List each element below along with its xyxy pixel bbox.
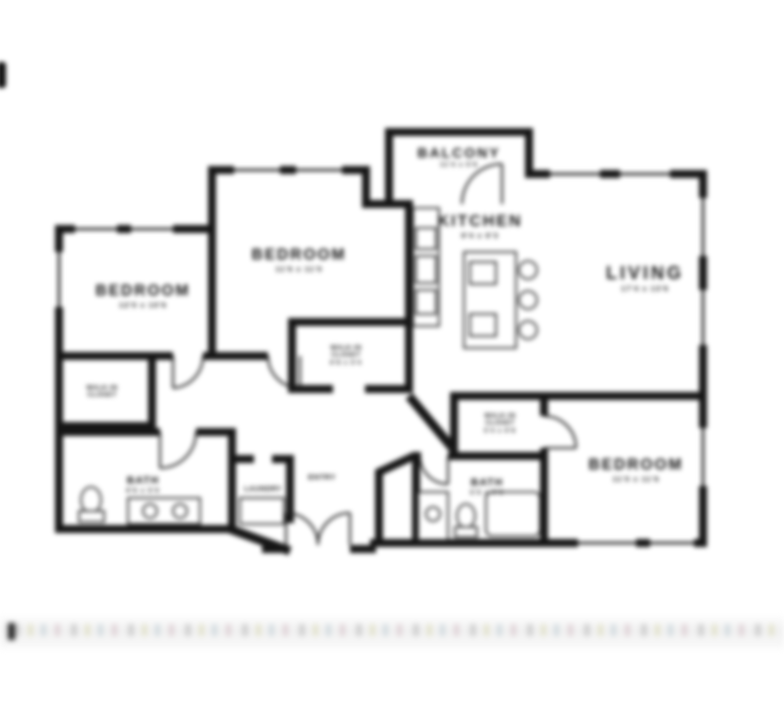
bar-stool-icon [519, 321, 537, 339]
door-arc-balcony [462, 164, 502, 204]
room-label-bedroom-top-middle: BEDROOM 11'6 x 11'0 [252, 246, 347, 273]
kitchen-appliance [416, 290, 436, 314]
wall [448, 452, 548, 460]
room-name: BATH [470, 477, 504, 489]
floor-plan-page: BALCONY 11'4 x 5'6 KITCHEN 9'4 x 9'3 LIV… [0, 0, 784, 709]
window [296, 169, 342, 172]
wall [208, 225, 216, 360]
wall [540, 392, 707, 400]
wall [375, 470, 383, 547]
wall [236, 455, 254, 463]
toilet-tank [79, 511, 104, 522]
room-name: KITCHEN [437, 213, 522, 231]
toilet-tank [455, 527, 477, 537]
wall-diagonal [230, 529, 290, 551]
window [702, 290, 705, 345]
wall [350, 545, 376, 553]
kitchen-appliance [416, 228, 436, 249]
room-label-entry: ENTRY [308, 474, 336, 483]
wall [288, 318, 296, 393]
window [75, 228, 117, 231]
room-name: BEDROOM [589, 456, 684, 474]
room-name: CLOSET [86, 392, 117, 399]
room-label-living: LIVING 17'4 x 13'6 [606, 263, 684, 293]
room-label-kitchen: KITCHEN 9'4 x 9'3 [437, 213, 522, 241]
room-dims: 9'4 x 9'3 [437, 232, 522, 241]
room-name: BALCONY [417, 145, 500, 161]
room-dims: 9'6 x 5'0 [126, 488, 160, 495]
sink-icon [173, 504, 187, 518]
kitchen-appliance [416, 256, 436, 283]
room-name: CLOSET [330, 352, 362, 359]
wall [540, 448, 548, 547]
room-label-balcony: BALCONY 11'4 x 5'6 [417, 145, 500, 170]
room-label-wic-right: WALK-IN CLOSET 5'4 x 6'8 [484, 413, 516, 436]
wall [208, 166, 216, 233]
bar-stool-icon [519, 261, 537, 279]
room-dims: 5'4 x 6'8 [484, 429, 516, 436]
wall [288, 318, 410, 326]
room-name: WALK-IN [484, 413, 516, 420]
window [234, 169, 280, 172]
floor-plan-drawing [0, 0, 784, 709]
footer-blurred-text [14, 624, 774, 636]
bathtub [486, 492, 540, 536]
footer-caption-strip [0, 615, 784, 649]
kitchen-cooktop [470, 314, 496, 336]
window [578, 542, 636, 545]
room-name: BEDROOM [96, 282, 191, 300]
door-arc-bedroom-right [544, 416, 576, 448]
toilet-icon [457, 504, 475, 528]
wall [405, 200, 413, 393]
window [702, 428, 705, 486]
wall [216, 352, 268, 360]
washer-dryer [240, 498, 284, 524]
room-dims: 5'0 x 9'6 [470, 490, 504, 497]
room-dims: 11'4 x 5'6 [417, 162, 500, 169]
door-arc-bedroom-left [173, 356, 203, 388]
room-label-bath-left: BATH 9'6 x 5'0 [126, 475, 160, 496]
toilet-icon [81, 487, 101, 513]
room-name: WALK-IN [330, 345, 362, 352]
wall [208, 166, 370, 174]
room-name: LIVING [606, 263, 684, 284]
room-name: BEDROOM [252, 246, 347, 264]
window [620, 173, 670, 176]
room-label-wic-middle: WALK-IN CLOSET 6'8 x 5'4 [330, 345, 362, 368]
wall [55, 428, 160, 436]
door-arc-bath-left [160, 432, 196, 468]
window [550, 173, 600, 176]
wall [196, 428, 236, 436]
wall-diagonal [377, 456, 414, 473]
bar-stool-icon [519, 291, 537, 309]
window [58, 252, 61, 307]
room-dims: 6'8 x 5'4 [330, 361, 362, 368]
wall [148, 352, 156, 430]
room-dims: 11'6 x 11'0 [252, 265, 347, 274]
room-label-laundry: LAUNDRY [244, 486, 281, 494]
floor-plan: BALCONY 11'4 x 5'6 KITCHEN 9'4 x 9'3 LIV… [0, 0, 784, 709]
room-label-wic-left: WALK-IN CLOSET [86, 385, 117, 400]
door-arc-bath-right [420, 456, 448, 484]
window [131, 228, 173, 231]
room-name: LAUNDRY [244, 486, 281, 494]
window [702, 198, 705, 256]
room-label-bedroom-bottom-right: BEDROOM 11'0 x 11'6 [589, 456, 684, 483]
wall [385, 128, 393, 206]
wall-diagonal [409, 396, 454, 450]
bath-vanity [128, 498, 200, 524]
room-name: WALK-IN [86, 385, 117, 392]
room-name: ENTRY [308, 474, 336, 483]
wall [228, 430, 236, 533]
sink-icon [426, 507, 440, 521]
room-name: BATH [126, 475, 160, 487]
room-label-bath-right: BATH 5'0 x 9'6 [470, 477, 504, 498]
room-label-bedroom-top-left: BEDROOM 12'0 x 10'6 [96, 282, 191, 309]
room-dims: 17'4 x 13'6 [606, 285, 684, 294]
room-name: CLOSET [484, 420, 516, 427]
room-dims: 12'0 x 10'6 [96, 301, 191, 310]
wall [288, 385, 333, 393]
kitchen-sink [470, 262, 496, 284]
wall [385, 128, 533, 136]
window [650, 542, 694, 545]
sink-icon [143, 504, 157, 518]
wall [365, 385, 410, 393]
room-dims: 11'0 x 11'6 [589, 475, 684, 484]
wall [55, 525, 235, 533]
wall [450, 392, 545, 400]
door-arc-entry-right [318, 513, 350, 545]
